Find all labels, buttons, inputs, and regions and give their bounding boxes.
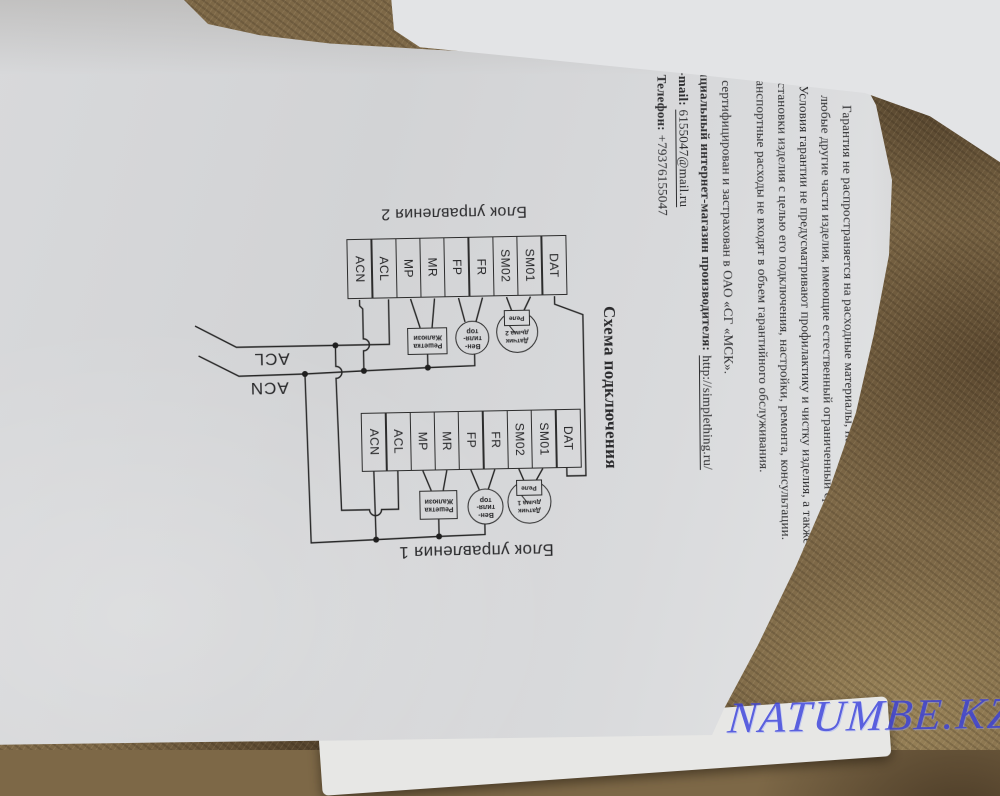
terminal-label: SM01 [522,249,537,283]
terminal-cell: SM02 [492,236,519,296]
relay-box: Реле [504,310,530,326]
terminal-label: SM01 [537,422,552,456]
terminal-label: MR [425,258,439,278]
terminal-cell: SM01 [516,235,543,295]
mains-line-label: ACL [244,348,298,369]
terminal-cell: FP [444,237,471,297]
terminal-cell: SM01 [531,409,558,468]
control-block-2-title: Блок управления 2 [359,201,549,223]
terminal-cell: SM02 [506,410,533,469]
terminal-cell: DAT [555,409,582,468]
terminal-cell: ACN [361,412,388,471]
terminal-label: FR [474,258,488,275]
terminal-label: SM02 [513,423,528,457]
terminal-cell: MP [409,411,436,470]
terminal-cell: MP [395,238,422,298]
terminal-label: DAT [547,253,561,278]
photo-scene: { "watermark": { "text": "NATUMBE.KZ" },… [0,0,1000,750]
terminal-label: ACL [391,429,405,454]
terminal-label: ACL [377,256,391,281]
terminal-label: DAT [561,426,575,451]
connection-diagram: Блок управления 2 ACN ACL MP MR FP FR SM… [0,0,1000,759]
control-block-1-title: Блок управления 1 [381,539,571,563]
terminal-cell: ACL [385,412,412,471]
terminal-cell: MR [434,411,461,470]
wires-svg [0,0,1000,759]
terminal-cell: ACL [371,238,398,298]
terminal-label: MP [415,432,429,451]
control-block-2-terminal-row: ACN ACL MP MR FP FR SM02 SM01 DAT [346,235,567,299]
paper: Гарантия не распространяется на расходны… [0,0,1000,750]
grille-box: РешеткаЖалюзи [407,327,448,355]
control-block-1-terminal-row: ACN ACL MP MR FP FR SM02 SM01 DAT [361,409,582,472]
terminal-cell: FP [458,411,485,470]
terminal-label: SM02 [498,249,513,283]
terminal-label: MP [401,258,415,277]
terminal-cell: DAT [541,235,568,295]
relay-box: Реле [516,479,542,495]
terminal-label: FP [464,432,478,449]
mains-neutral-label: ACN [242,377,296,398]
grille-box: РешеткаЖалюзи [419,490,458,520]
terminal-cell: MR [419,237,446,297]
terminal-label: FR [488,431,502,448]
terminal-cell: ACN [346,239,373,299]
terminal-cell: FR [468,236,495,296]
terminal-cell: FR [482,410,509,469]
watermark: NATUMBE.KZ [726,687,1000,743]
terminal-label: FP [450,259,464,276]
terminal-label: MR [440,431,454,451]
terminal-label: ACN [352,255,367,282]
terminal-label: ACN [367,429,382,456]
